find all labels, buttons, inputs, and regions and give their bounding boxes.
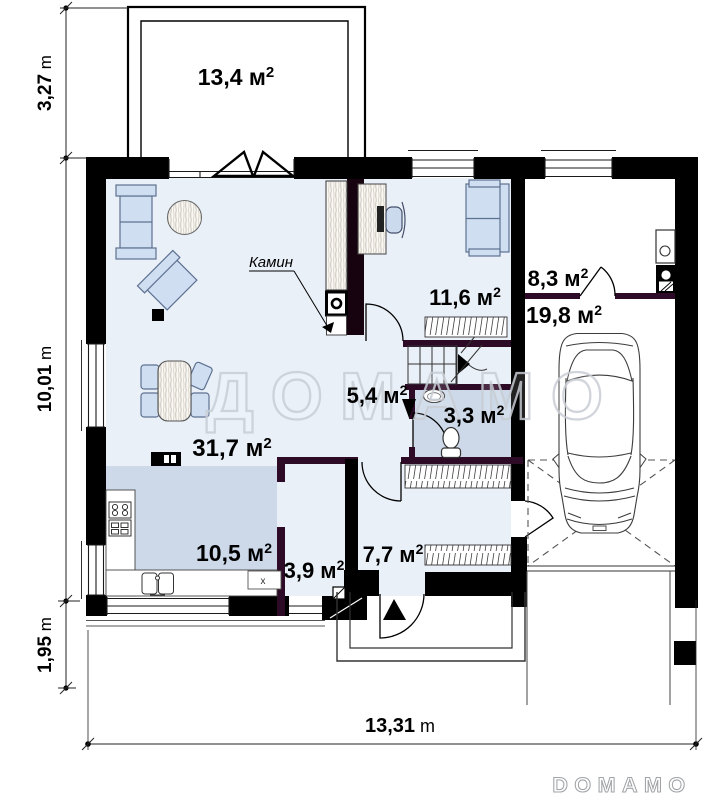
svg-text:19,8 м2: 19,8 м2: [526, 302, 602, 328]
svg-text:31,7 м2: 31,7 м2: [192, 435, 271, 462]
svg-text:8,3 м2: 8,3 м2: [528, 265, 589, 291]
svg-text:DOMAMO: DOMAMO: [552, 773, 691, 797]
svg-text:7,7 м2: 7,7 м2: [363, 541, 424, 567]
svg-text:11,6 м2: 11,6 м2: [429, 284, 501, 310]
svg-text:3,9 м2: 3,9 м2: [284, 557, 345, 583]
svg-text:1,95 m: 1,95 m: [35, 617, 56, 673]
svg-text:13,4 м2: 13,4 м2: [198, 64, 275, 90]
svg-text:13,31 m: 13,31 m: [365, 715, 435, 737]
svg-text:3,3 м2: 3,3 м2: [444, 402, 505, 428]
svg-text:Камин: Камин: [249, 254, 293, 271]
svg-text:10,01 m: 10,01 m: [35, 346, 56, 412]
svg-text:10,5 м2: 10,5 м2: [196, 540, 272, 566]
svg-text:5,4 м2: 5,4 м2: [347, 382, 408, 408]
svg-text:x: x: [261, 576, 266, 587]
svg-text:ДОМАМО: ДОМАМО: [206, 359, 620, 434]
svg-text:3,27 m: 3,27 m: [35, 55, 56, 111]
